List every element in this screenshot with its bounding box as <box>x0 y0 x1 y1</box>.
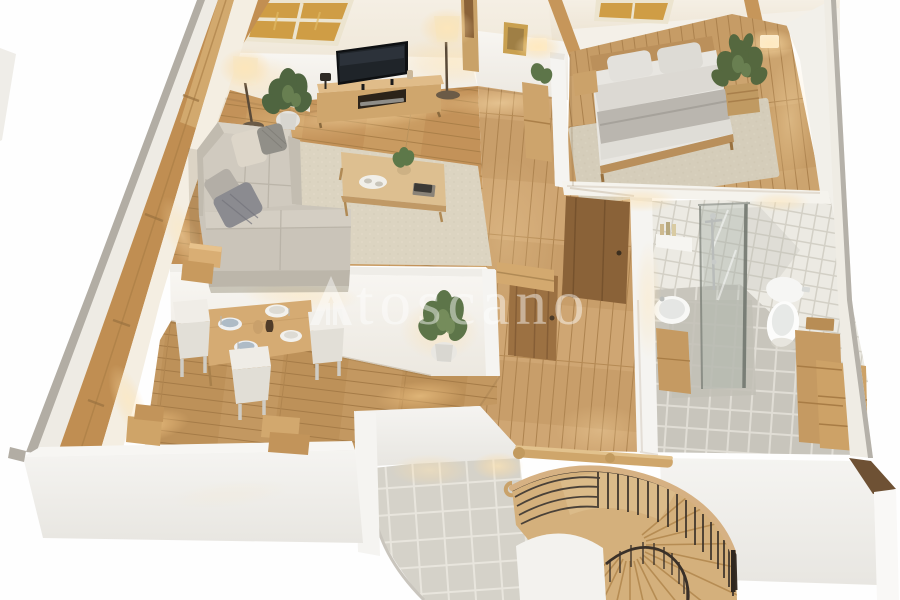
svg-text:toscano: toscano <box>356 268 590 338</box>
